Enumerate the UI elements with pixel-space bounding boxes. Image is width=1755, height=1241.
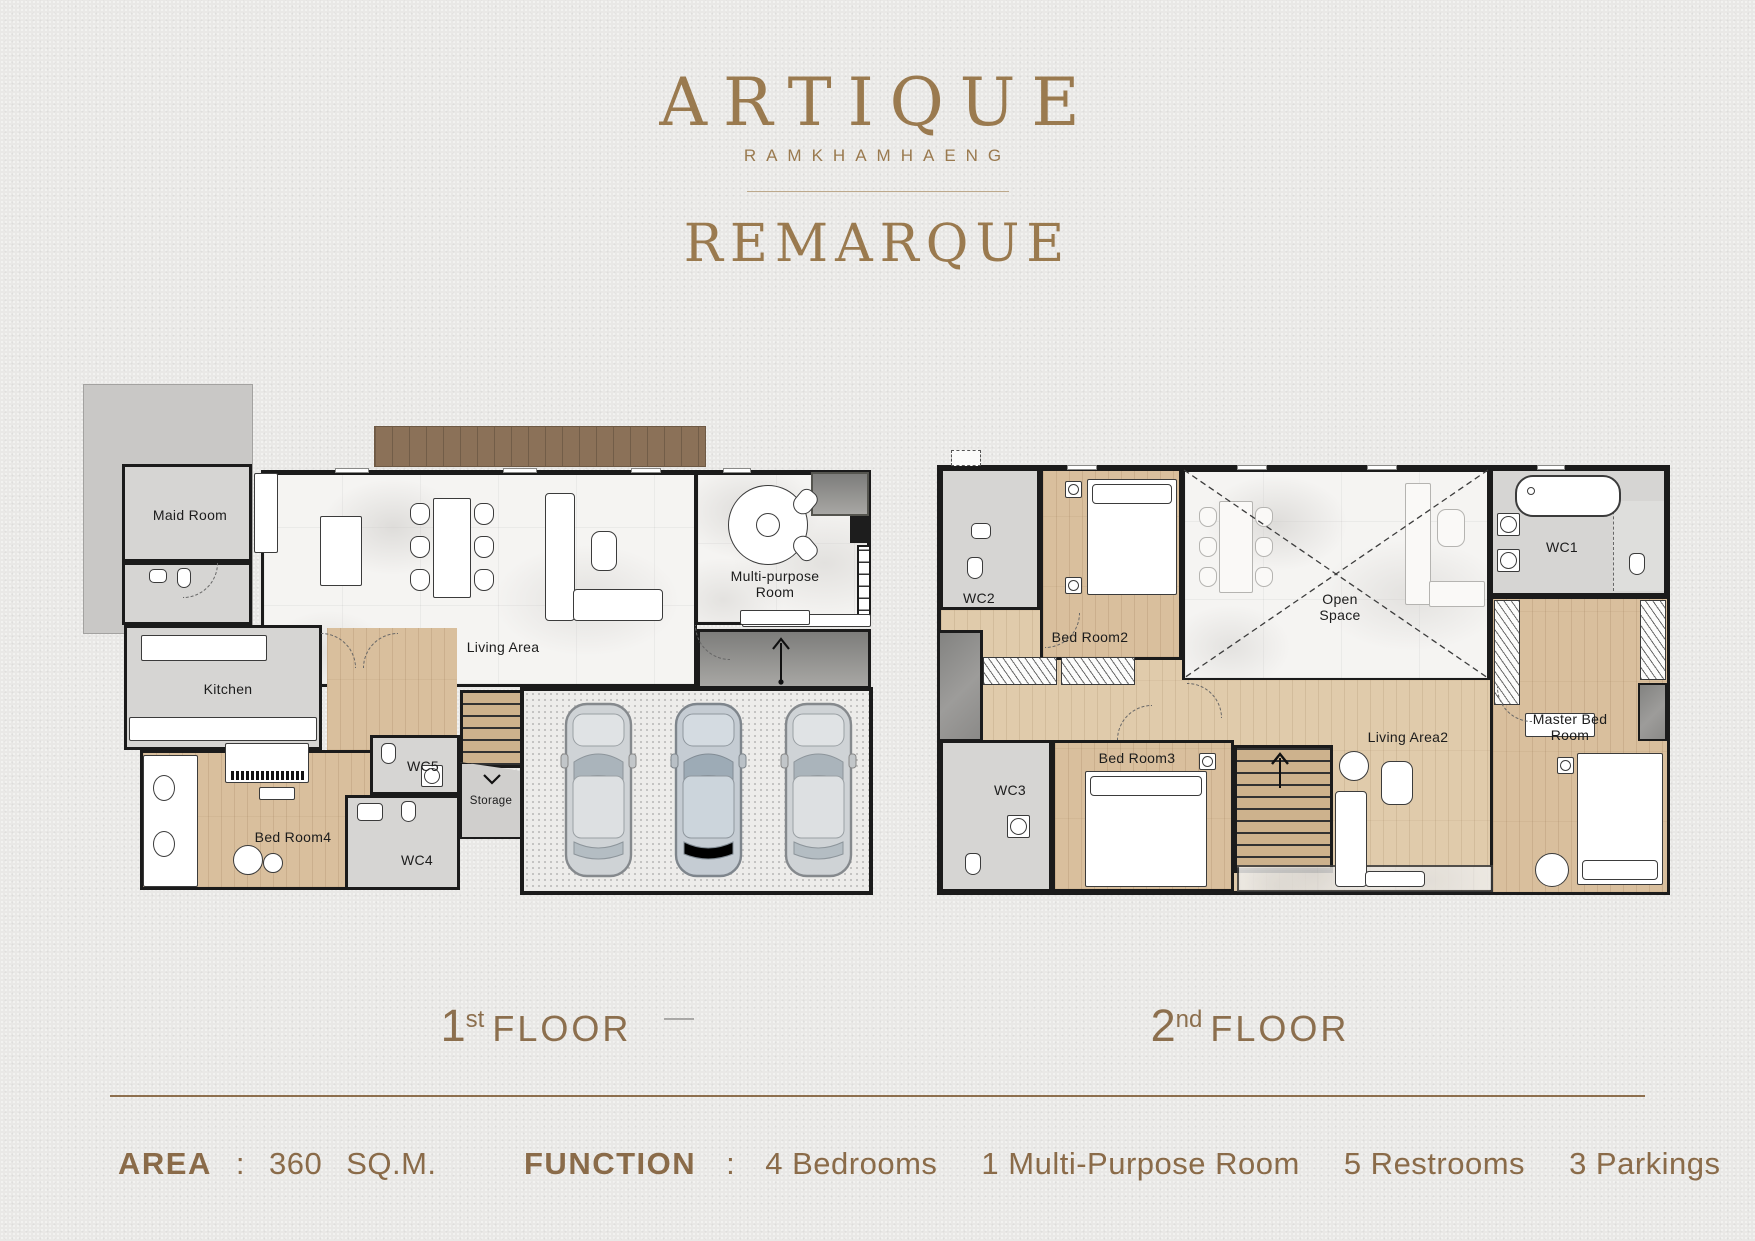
room-label: Bed Room3 (1099, 750, 1176, 766)
sink-icon (149, 569, 167, 583)
function-item: 3 Parkings (1569, 1146, 1720, 1182)
floor-ordinal-suffix: st (466, 1006, 485, 1033)
kitchen-counter2-icon (129, 717, 317, 741)
second-floor-caption: 2ndFLOOR (1151, 1000, 1350, 1052)
entry-fixture (850, 516, 871, 543)
room-label: Master Bed Room (1520, 711, 1620, 743)
first-floor-plan: Maid Room Kitchen Living Area Multi-purp… (83, 383, 873, 895)
room-label: Maid Room (153, 507, 227, 523)
armchair-icon (233, 845, 263, 875)
room-label: Multi-purpose Room (726, 568, 824, 600)
floor-ordinal-suffix: nd (1176, 1006, 1203, 1033)
room-label: Open Space (1319, 591, 1360, 623)
nightstand-icon (1199, 753, 1216, 770)
function-spec: FUNCTION : 4 Bedrooms 1 Multi-Purpose Ro… (524, 1146, 1721, 1182)
chair-icon (474, 569, 494, 591)
caption-dash (664, 1018, 694, 1020)
window-icon (723, 468, 751, 473)
bathtub-icon (1515, 475, 1621, 517)
wall-shelf-icon (857, 545, 871, 625)
chair-icon (410, 503, 430, 525)
wc1-toilet-room (1613, 501, 1664, 591)
down-arrow-icon (481, 771, 503, 787)
room-label: Living Area2 (1368, 729, 1449, 745)
car-icon (560, 700, 637, 880)
footer-divider (110, 1095, 1645, 1097)
first-floor-caption: 1stFLOOR (441, 1000, 632, 1052)
room-label: WC1 (1546, 539, 1578, 555)
function-item: 4 Bedrooms (765, 1146, 937, 1182)
floor-word: FLOOR (1210, 1008, 1349, 1049)
colon: : (236, 1146, 245, 1182)
void-cross-icon (1182, 468, 1490, 680)
bed-icon (1085, 771, 1207, 887)
tub-drain-icon (1527, 487, 1535, 495)
window-icon (1367, 465, 1397, 470)
toilet-icon (1629, 553, 1645, 575)
room-label: Storage (470, 795, 512, 807)
plan-name-title: REMARQUE (0, 214, 1755, 274)
dining-table-icon (433, 498, 471, 598)
wc3-room (940, 740, 1052, 892)
piano-icon (225, 743, 309, 783)
sofa-seat-icon (1365, 871, 1425, 887)
sink-icon (357, 803, 383, 821)
balcony (937, 630, 983, 742)
room-label: Living Area (467, 639, 540, 655)
floor-number: 2 (1151, 1000, 1176, 1051)
nightstand-icon (1557, 757, 1574, 774)
window-icon (503, 468, 537, 473)
master-balcony (1638, 683, 1667, 741)
colon: : (726, 1146, 735, 1182)
coffee-table-icon (1381, 761, 1413, 805)
armchair-icon (1339, 751, 1369, 781)
area-value: 360 (269, 1146, 322, 1182)
closet-icon (1640, 600, 1666, 680)
side-table-icon (263, 853, 283, 873)
area-unit: SQ.M. (346, 1146, 436, 1182)
wardrobe-icon (254, 473, 278, 553)
room-label: WC5 (407, 758, 439, 774)
area-label: AREA (118, 1146, 212, 1182)
sofa-chaise-icon (573, 589, 663, 621)
chair-icon (410, 569, 430, 591)
function-label: FUNCTION (524, 1146, 696, 1182)
room-label: Bed Room2 (1052, 629, 1129, 645)
header-divider (747, 191, 1009, 192)
bed-icon (1087, 479, 1177, 595)
wc2-room (940, 468, 1040, 610)
room-label: WC4 (401, 852, 433, 868)
kitchen-counter-icon (141, 635, 267, 661)
coffee-table-icon (591, 531, 617, 571)
brand-logo: ARTIQUE (0, 64, 1755, 141)
car-icon (670, 700, 747, 880)
toilet-icon (967, 557, 983, 579)
chair-icon (410, 536, 430, 558)
window-icon (335, 468, 369, 473)
area-spec: AREA : 360 SQ.M. (118, 1146, 437, 1182)
terrace-chair-icon (153, 775, 175, 801)
terrace-chair2-icon (153, 831, 175, 857)
toilet-icon (401, 801, 416, 822)
brochure-page: ARTIQUE RAMKHAMHAENG REMARQUE (0, 0, 1755, 1241)
chair-icon (474, 536, 494, 558)
car-icon (780, 700, 857, 880)
room-label: WC3 (994, 782, 1026, 798)
vent-box-icon (951, 450, 981, 466)
chair-icon (474, 503, 494, 525)
up-arrow-icon (1269, 751, 1291, 791)
toilet-icon (965, 853, 981, 875)
window-icon (1537, 465, 1565, 470)
armchair-icon (1535, 853, 1569, 887)
closet-icon (1061, 657, 1135, 685)
entry-porch (811, 472, 869, 516)
nightstand-icon (1065, 577, 1082, 594)
staircase (460, 690, 526, 768)
table-center-icon (756, 513, 780, 537)
room-label: WC2 (963, 590, 995, 606)
piano-bench-icon (259, 787, 295, 800)
bedroom4-terrace (143, 755, 198, 887)
window-icon (1067, 465, 1097, 470)
window-icon (1237, 465, 1267, 470)
room-label: Kitchen (204, 681, 253, 697)
island-counter-icon (320, 516, 362, 586)
brand-location: RAMKHAMHAENG (0, 146, 1755, 166)
nightstand-icon (1065, 481, 1082, 498)
bed-icon (1577, 753, 1663, 885)
up-arrow-icon (771, 635, 791, 685)
sink-icon (1497, 513, 1520, 536)
sink-icon (1007, 815, 1030, 838)
floor-word: FLOOR (492, 1008, 631, 1049)
second-floor-plan: WC2 Bed Room2 Open Space WC1 WC3 Bed Roo… (937, 465, 1670, 895)
function-item: 5 Restrooms (1344, 1146, 1525, 1182)
closet-icon (983, 657, 1057, 685)
room-label: Bed Room4 (255, 829, 332, 845)
toilet-icon (381, 743, 396, 764)
wood-deck (374, 426, 706, 467)
sofa-icon (1335, 791, 1367, 887)
sink-icon (971, 523, 991, 539)
sink-icon (1497, 549, 1520, 572)
window-icon (631, 468, 661, 473)
floor-number: 1 (441, 1000, 466, 1051)
sofa-icon (545, 493, 575, 621)
console-icon (740, 610, 810, 625)
function-item: 1 Multi-Purpose Room (981, 1146, 1299, 1182)
